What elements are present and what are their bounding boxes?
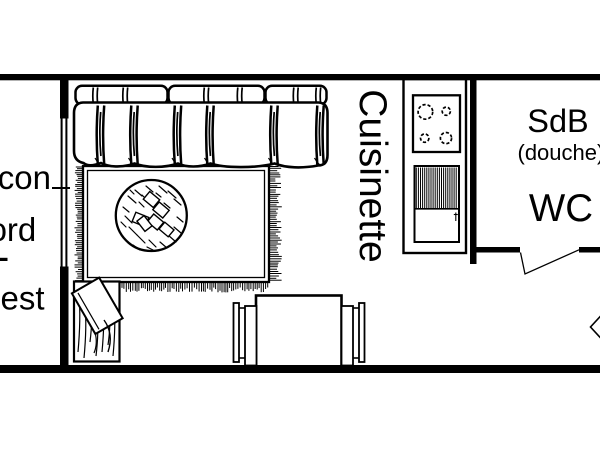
svg-text:Ouest: Ouest (0, 280, 45, 317)
svg-text:(douche): (douche) (518, 140, 600, 165)
svg-text:Nord: Nord (0, 211, 36, 248)
svg-text:Cuisinette: Cuisinette (351, 89, 394, 262)
svg-text:WC: WC (529, 187, 593, 230)
svg-text:Balcon: Balcon (0, 159, 51, 196)
svg-text:SdB: SdB (527, 103, 588, 139)
